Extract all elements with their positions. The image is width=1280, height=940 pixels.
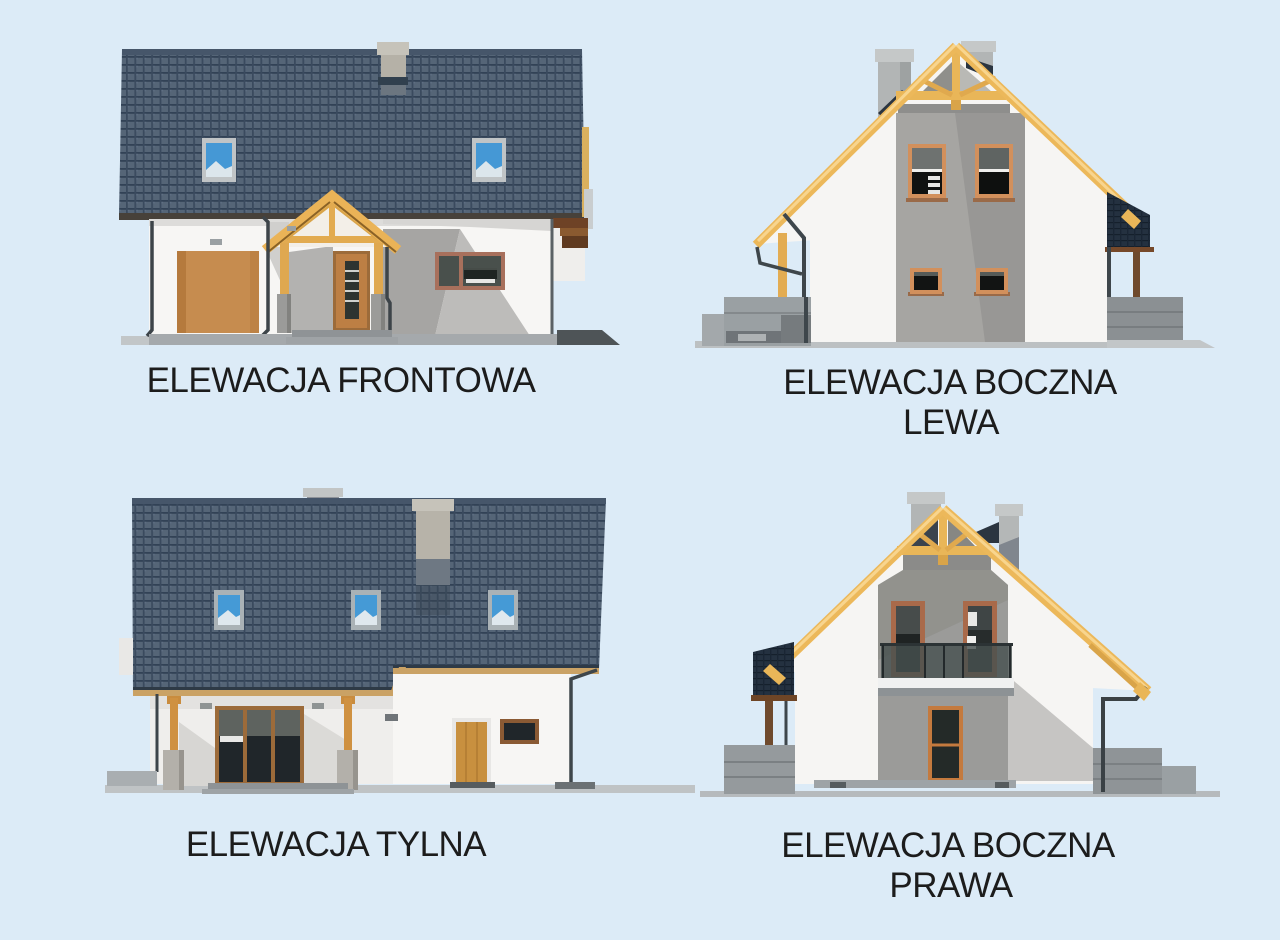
- svg-text:LEWA: LEWA: [903, 403, 1000, 442]
- svg-text:ELEWACJA BOCZNA: ELEWACJA BOCZNA: [781, 826, 1116, 865]
- svg-text:ELEWACJA TYLNA: ELEWACJA TYLNA: [186, 825, 487, 864]
- svg-text:ELEWACJA FRONTOWA: ELEWACJA FRONTOWA: [147, 361, 537, 400]
- svg-text:ELEWACJA BOCZNA: ELEWACJA BOCZNA: [783, 363, 1118, 402]
- svg-text:PRAWA: PRAWA: [889, 866, 1013, 905]
